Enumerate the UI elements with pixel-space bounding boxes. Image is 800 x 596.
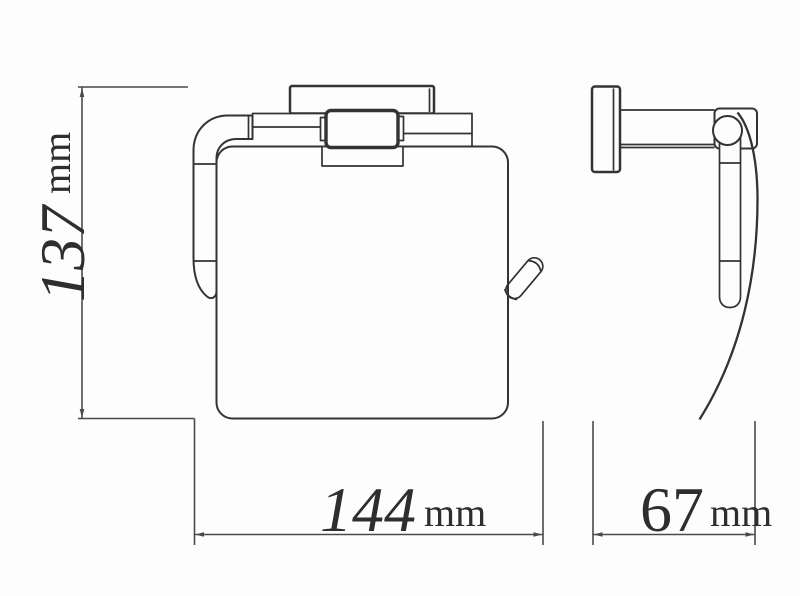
depth-value: 67 — [640, 474, 704, 545]
technical-drawing: 137mm 144mm 67mm — [0, 0, 800, 596]
width-value: 144 — [320, 474, 416, 545]
cover-body — [217, 147, 509, 419]
width-label: 144mm — [320, 474, 486, 545]
front-view — [194, 86, 547, 419]
side-wall-plate — [592, 87, 620, 173]
roll-bar-capsule — [720, 135, 741, 308]
arrow-down-icon — [80, 409, 85, 418]
arrow-left-icon — [195, 532, 204, 536]
holder-arm — [194, 116, 253, 299]
arrow-right-icon — [534, 532, 543, 536]
height-label: 137mm — [27, 132, 98, 302]
roll-clip — [326, 111, 398, 148]
width-dimension: 144mm — [195, 419, 544, 546]
arrow-left-icon — [594, 532, 603, 536]
roll-bar-end-circle — [713, 116, 742, 145]
arrow-up-icon — [80, 88, 85, 97]
height-unit: mm — [34, 132, 79, 194]
hinge-plate — [322, 147, 403, 167]
depth-dimension: 67mm — [593, 421, 772, 545]
height-value: 137 — [27, 203, 98, 302]
drawing-canvas: 137mm 144mm 67mm — [0, 0, 800, 596]
side-view — [592, 87, 758, 420]
width-unit: mm — [424, 490, 486, 535]
depth-unit: mm — [710, 490, 772, 535]
height-dimension: 137mm — [27, 87, 195, 419]
